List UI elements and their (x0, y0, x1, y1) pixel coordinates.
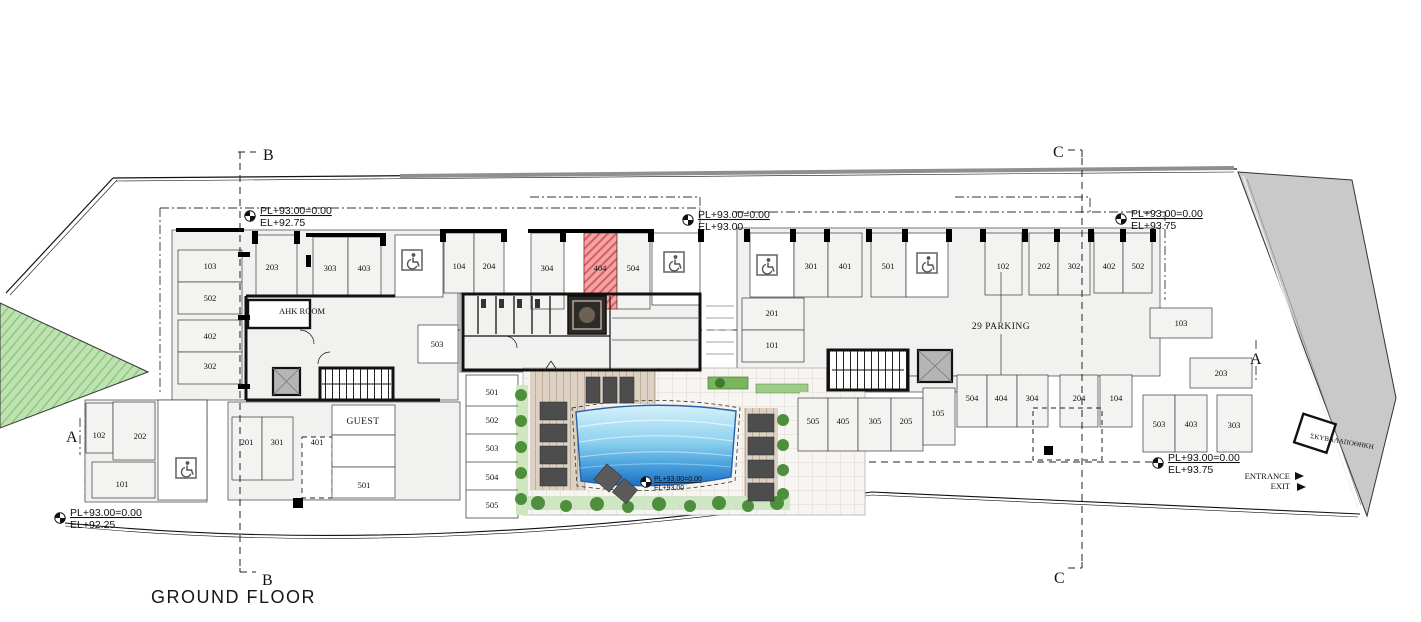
parking-count-label: 29 PARKING (972, 322, 1030, 332)
space-label: 402 (204, 331, 217, 341)
store-label: 502 (486, 415, 499, 425)
space-label: 403 (1185, 419, 1198, 429)
level-bottom-left: PL+93.00=0.00 EL+92.25 (55, 507, 142, 531)
space-label: 305 (869, 416, 882, 426)
space-label: 404 (995, 393, 1009, 403)
space-label: 401 (311, 437, 324, 447)
space-label: 302 (204, 361, 217, 371)
space-label: 502 (204, 293, 217, 303)
level-top-left: PL+93.00=0.00 EL+92.75 (245, 205, 332, 229)
floor-plan-drawing: 103 502 402 302 203 303 403 104 204 304 … (0, 0, 1421, 622)
space-label: 301 (805, 261, 818, 271)
space-label: 402 (1103, 261, 1116, 271)
svg-text:PL+93.00=0.00: PL+93.00=0.00 (1131, 208, 1203, 220)
guest-room-label: GUEST (346, 417, 379, 427)
section-letter-b-top: B (263, 147, 274, 164)
store-label: 501 (486, 387, 499, 397)
entrance-arrow-icon (1295, 472, 1304, 480)
space-label: 403 (358, 263, 371, 273)
space-label: 101 (766, 340, 779, 350)
space-label: 401 (839, 261, 852, 271)
exit-arrow-icon (1297, 483, 1306, 491)
space-label: 504 (966, 393, 980, 403)
svg-text:EL+92.75: EL+92.75 (260, 217, 305, 229)
svg-text:EL+93.00: EL+93.00 (698, 221, 743, 233)
level-marker-icon (1153, 458, 1163, 468)
space-label: 103 (204, 261, 217, 271)
wheelchair-icon (917, 253, 937, 273)
page-title: GROUND FLOOR (151, 587, 316, 607)
level-marker-icon (245, 211, 255, 221)
level-marker-icon (1116, 214, 1126, 224)
store-label: 503 (486, 443, 499, 453)
wheelchair-icon (664, 252, 684, 272)
svg-text:PL+93.00=0.00: PL+93.00=0.00 (260, 205, 332, 217)
ground-floor-plan: 103 502 402 302 203 303 403 104 204 304 … (0, 0, 1421, 622)
store-label: 504 (486, 472, 500, 482)
level-marker-icon (683, 215, 693, 225)
section-letter-c-bottom: C (1054, 570, 1065, 587)
wheelchair-icon (757, 255, 777, 275)
svg-text:PL+93.00=0.00: PL+93.00=0.00 (70, 507, 142, 519)
space-label: 502 (1132, 261, 1145, 271)
space-label: 203 (1215, 368, 1228, 378)
space-label: 204 (483, 261, 497, 271)
space-label: 503 (1153, 419, 1166, 429)
space-label: 101 (116, 479, 129, 489)
section-letter-a-left: A (66, 429, 78, 446)
space-label: 103 (1175, 318, 1188, 328)
space-label: 202 (1038, 261, 1051, 271)
space-label: 204 (1073, 393, 1087, 403)
svg-text:EL+93.00: EL+93.00 (654, 485, 684, 492)
space-label: 304 (1026, 393, 1040, 403)
space-label: 205 (900, 416, 913, 426)
bottom-left-block: 102 202 101 (86, 400, 207, 500)
road-area (1238, 172, 1396, 516)
space-label: 505 (807, 416, 820, 426)
space-label: 404 (594, 263, 608, 273)
wheelchair-icon (176, 458, 196, 478)
section-letter-c-top: C (1053, 144, 1064, 161)
space-label: 501 (358, 480, 371, 490)
ramp (706, 306, 734, 354)
svg-text:PL+93.00=0.00: PL+93.00=0.00 (654, 476, 702, 483)
space-label: 302 (1068, 261, 1081, 271)
store-label: 505 (486, 500, 499, 510)
space-label: 303 (324, 263, 337, 273)
space-label: 405 (837, 416, 850, 426)
entrance-exit: ENTRANCE EXIT (1245, 471, 1306, 491)
space-label: 201 (766, 308, 779, 318)
svg-text:EL+92.25: EL+92.25 (70, 519, 115, 531)
space-label: 303 (1228, 420, 1241, 430)
entrance-label: ENTRANCE (1245, 471, 1290, 481)
svg-text:EL+93.75: EL+93.75 (1131, 220, 1176, 232)
space-label: 104 (453, 261, 467, 271)
space-label: 503 (431, 339, 444, 349)
level-bottom-right: PL+93.00=0.00 EL+93.75 (1153, 452, 1240, 476)
space-label: 102 (997, 261, 1010, 271)
space-label: 105 (932, 408, 945, 418)
wheelchair-icon (402, 250, 422, 270)
exit-label: EXIT (1271, 481, 1291, 491)
svg-text:PL+93.00=0.00: PL+93.00=0.00 (698, 209, 770, 221)
level-marker-icon (55, 513, 65, 523)
space-label: 104 (1110, 393, 1124, 403)
svg-text:EL+93.75: EL+93.75 (1168, 464, 1213, 476)
svg-text:PL+93.00=0.00: PL+93.00=0.00 (1168, 452, 1240, 464)
level-marker-icon (641, 477, 651, 487)
ahk-room-label: AHK ROOM (279, 306, 325, 316)
space-label: 501 (882, 261, 895, 271)
section-letter-a-right: A (1250, 351, 1262, 368)
space-label: 301 (271, 437, 284, 447)
space-label: 304 (541, 263, 555, 273)
space-label: 102 (93, 430, 106, 440)
space-label: 201 (241, 437, 254, 447)
space-label: 504 (627, 263, 641, 273)
space-label: 203 (266, 262, 279, 272)
space-label: 202 (134, 431, 147, 441)
